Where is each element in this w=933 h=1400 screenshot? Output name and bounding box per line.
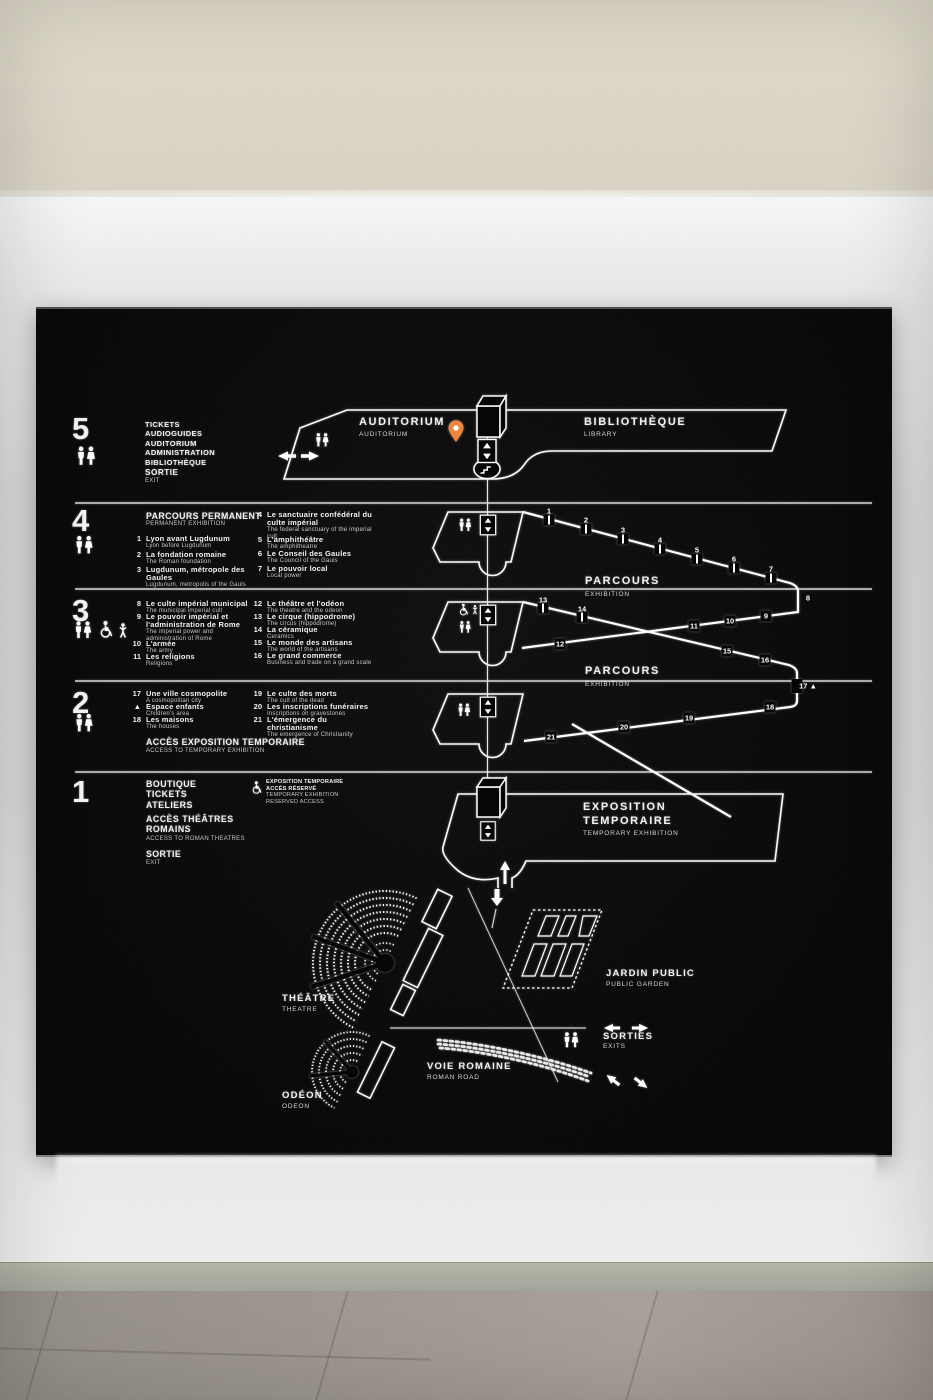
tile-grout-line [624,1291,659,1400]
tiled-floor [0,1291,933,1400]
tile-grout-line [314,1291,349,1400]
tile-grout-line [24,1291,59,1400]
tile-grout-line [0,1347,430,1360]
photo-of-wayfinding-sign: 5 TICKETS AUDIOGUIDES AUDITORIUM ADMINIS… [0,0,933,1400]
baseboard [0,1262,933,1292]
wayfinding-panel [36,307,892,1157]
ceiling [0,0,933,198]
panel-reflection [56,1156,876,1190]
